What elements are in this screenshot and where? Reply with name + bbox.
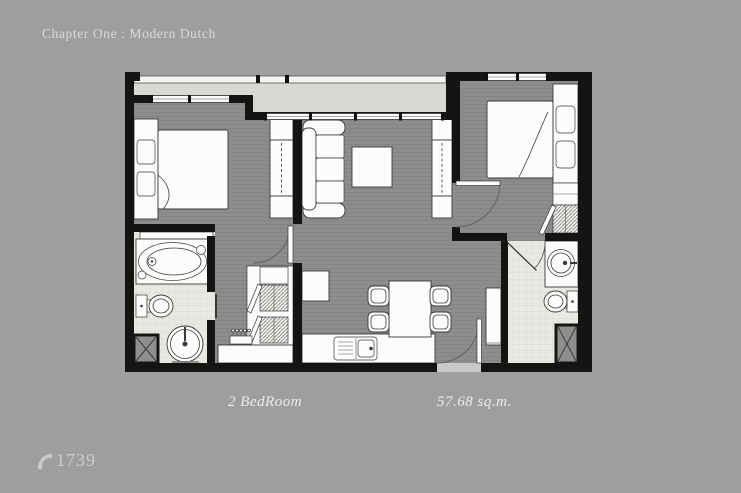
tub-shelf — [140, 232, 213, 239]
washbasin-icon — [545, 241, 578, 287]
bathtub-icon — [136, 239, 213, 284]
vanity-counter — [218, 345, 293, 363]
wardrobe-icon — [270, 118, 293, 218]
wardrobe-shelves-icon — [247, 266, 293, 345]
bed-icon — [134, 119, 228, 219]
presentation-slide: Chapter One : Modern Dutch — [0, 0, 741, 493]
toilet-icon — [136, 295, 173, 317]
kitchen-sink-icon — [334, 337, 377, 360]
bathroom-2 — [544, 241, 578, 312]
area-label: 57.68 sq.m. — [437, 394, 512, 411]
window-icon — [264, 113, 444, 121]
toilet-icon — [544, 291, 578, 312]
coffee-table-icon — [352, 147, 392, 187]
window-icon — [485, 73, 549, 81]
shaft-icon — [556, 325, 578, 363]
shaft-icon — [134, 335, 158, 363]
phone-icon — [36, 452, 54, 470]
window-icon — [150, 95, 232, 103]
dining-table-icon — [389, 281, 431, 337]
unit-number: 1739 — [56, 450, 96, 471]
entrance-threshold — [437, 363, 481, 372]
sofa-icon — [302, 120, 345, 218]
floor-plan — [0, 0, 741, 493]
entrance-foyer — [486, 288, 501, 345]
chapter-title: Chapter One : Modern Dutch — [42, 26, 216, 42]
unit-type-label: 2 BedRoom — [228, 394, 302, 411]
fridge-icon — [302, 271, 329, 301]
balcony-railing — [134, 76, 446, 83]
brush-set-icon — [230, 329, 252, 344]
storage-cabinet-icon — [432, 117, 452, 218]
shoe-cabinet-icon — [486, 288, 501, 345]
